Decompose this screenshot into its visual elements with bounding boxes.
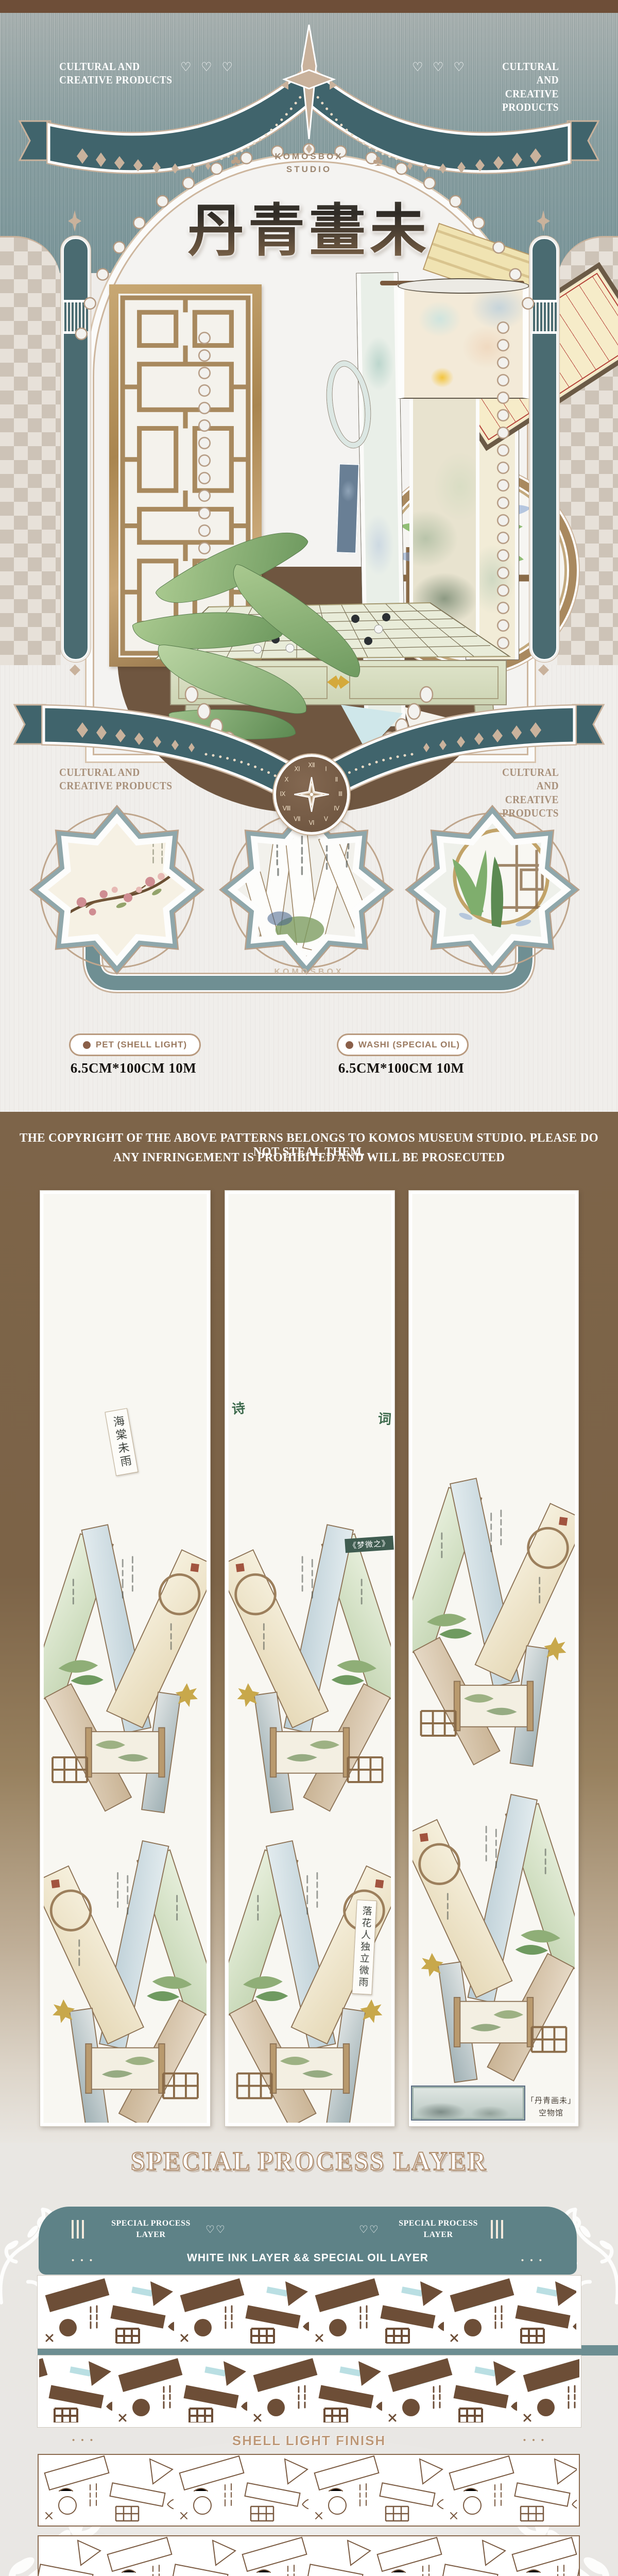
special-process-title: SPECIAL PROCESS LAYER [15,2146,603,2177]
white-ink-subtitle: WHITE INK LAYER && SPECIAL OIL LAYER [39,2252,577,2264]
bars-icon-left [72,2220,84,2239]
gold-butterfly-handle [327,675,350,689]
club-icon-left: ♣ [231,152,241,170]
pattern-panel-3 [408,1190,579,2127]
blue-tag [336,463,359,553]
pattern-panel-1 [40,1190,211,2127]
spec-pill-washi: WASHI (SPECIAL OIL) [337,1033,469,1056]
sample-badge-1 [29,805,204,975]
main-title: 丹青畫未 [0,184,618,267]
shell-outline-strip-2 [38,2535,580,2576]
shell-dots-right: • • • [523,2436,546,2445]
hearts-panel-right: ♡♡ [359,2223,380,2236]
cultural-label-mid-left: CULTURAL ANDCREATIVE PRODUCTS [59,766,172,793]
hearts-top-left: ♡ ♡ ♡ [180,60,236,75]
copyright-line-2: ANY INFRINGEMENT IS PROHIBITED AND WILL … [12,1151,606,1165]
clock-medallion: ⅫⅠⅡⅢⅣⅤⅥⅦⅧⅨⅩⅪ [273,754,350,835]
compass-star-icon [292,775,331,814]
hearts-top-right: ♡ ♡ ♡ [412,60,468,75]
product-poster-page: CULTURAL ANDCREATIVE PRODUCTS CULTURAL A… [0,0,618,2576]
panel2-seal-shi: 诗 [231,1398,246,1418]
cultural-label-top-right: CULTURAL ANDCREATIVE PRODUCTS [502,60,559,114]
spec-pill-pet: PET (SHELL LIGHT) [69,1033,201,1056]
pill-dot-icon [346,1041,353,1049]
bars-icon-right [491,2220,503,2239]
club-icon-right: ♣ [373,152,383,170]
panel-artwork [44,1194,207,2123]
special-process-label-right: SPECIAL PROCESSLAYER [387,2218,490,2240]
pill-label: WASHI (SPECIAL OIL) [358,1040,460,1050]
pill-dot-icon [83,1041,91,1049]
argyle-panel-left [0,236,61,665]
special-process-label-left: SPECIAL PROCESSLAYER [99,2218,202,2240]
teal-column-left [63,238,89,660]
cultural-label-top-left: CULTURAL ANDCREATIVE PRODUCTS [59,60,172,87]
panel2-seal-ci: 词 [377,1408,392,1428]
cultural-label-mid-right: CULTURAL ANDCREATIVE PRODUCTS [502,766,559,820]
sample-badge-3 [405,805,580,975]
special-process-panel: SPECIAL PROCESSLAYER ♡♡ ♡♡ SPECIAL PROCE… [39,2207,577,2275]
white-ink-strip-1 [38,2276,581,2348]
spec-size-pet: 6.5CM*100CM 10M [69,1060,198,1076]
white-ink-strip-2 [38,2355,581,2427]
panel3-series-label: 「丹青画未」空物馆 [525,2095,577,2120]
hearts-panel-left: ♡♡ [205,2223,226,2236]
pearl-chain-left [197,330,212,592]
top-brown-bar [0,0,618,13]
pill-label: PET (SHELL LIGHT) [96,1040,187,1050]
dots-right: • • • [521,2256,544,2265]
shell-outline-strip-1 [38,2454,580,2527]
teal-column-right [531,238,557,660]
komosbox-bar-label: KOMOSBOX [0,968,618,977]
panel3-landscape-thumbnail [412,2087,524,2120]
panel-artwork [413,1194,575,2123]
studio-name: KOMOSBOXSTUDIO [0,150,618,176]
drawer-right [349,666,499,699]
spec-size-washi: 6.5CM*100CM 10M [337,1060,466,1076]
